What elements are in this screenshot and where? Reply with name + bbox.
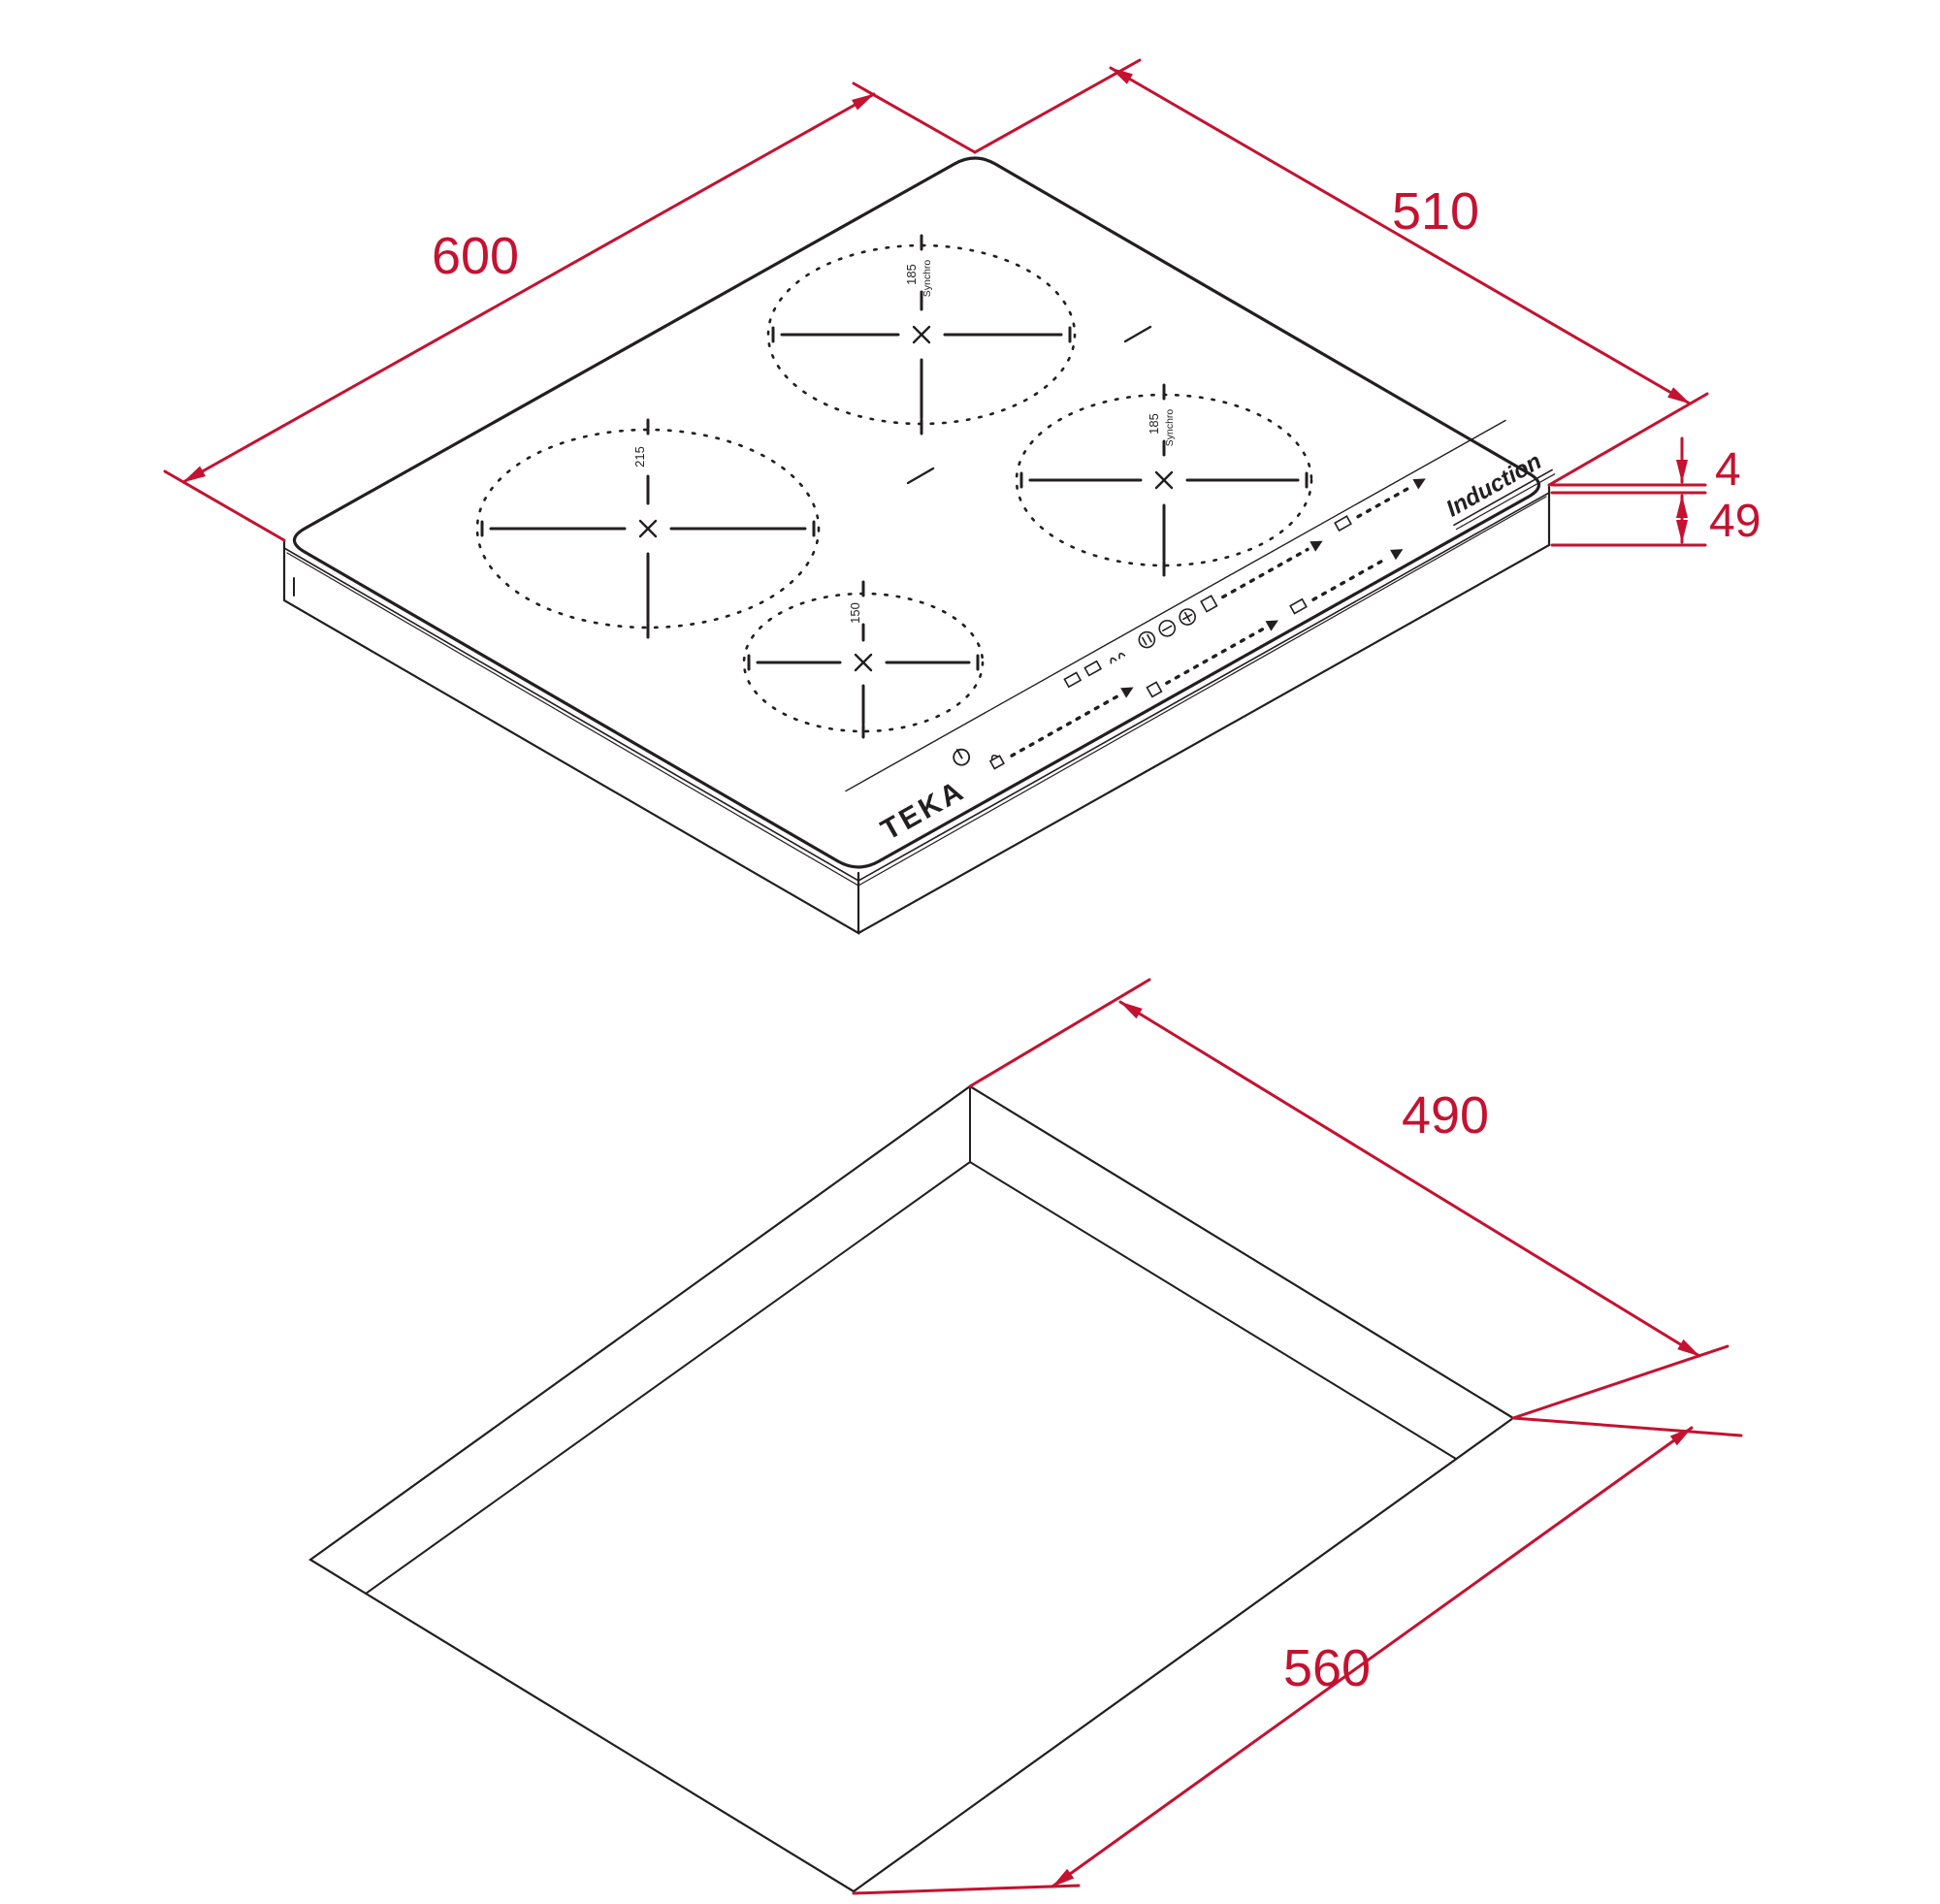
- zone-feature-label: Synchro: [921, 260, 933, 298]
- zone-size-label: 185: [1147, 413, 1161, 435]
- extension-line: [1513, 1418, 1741, 1436]
- zone-size-label: 215: [632, 446, 647, 468]
- hob-diagram: 185 Synchro 185 Synchro: [165, 60, 1761, 933]
- zone-feature-label: Synchro: [1164, 409, 1176, 447]
- extension-line: [975, 60, 1140, 152]
- cutout-opening-outline: [310, 1086, 1513, 1891]
- extension-line: [1513, 1346, 1728, 1418]
- dimension-value: 600: [432, 227, 519, 285]
- dimension-value: 560: [1283, 1639, 1371, 1697]
- dimension-value: 49: [1709, 496, 1761, 547]
- dimension-value: 510: [1392, 182, 1479, 241]
- dimension-value: 490: [1402, 1086, 1489, 1145]
- cutout-diagram: 490 560: [310, 980, 1741, 1893]
- extension-line: [970, 980, 1149, 1086]
- extension-line: [1549, 394, 1707, 485]
- zone-size-label: 185: [904, 264, 919, 285]
- dimension-drawing-page: 185 Synchro 185 Synchro: [0, 0, 1940, 1904]
- technical-drawing: 185 Synchro 185 Synchro: [0, 0, 1940, 1904]
- dimension-height-49: 49: [1552, 496, 1761, 547]
- extension-line: [854, 1886, 1079, 1893]
- dimension-value: 4: [1715, 444, 1741, 496]
- zone-size-label: 150: [848, 602, 862, 624]
